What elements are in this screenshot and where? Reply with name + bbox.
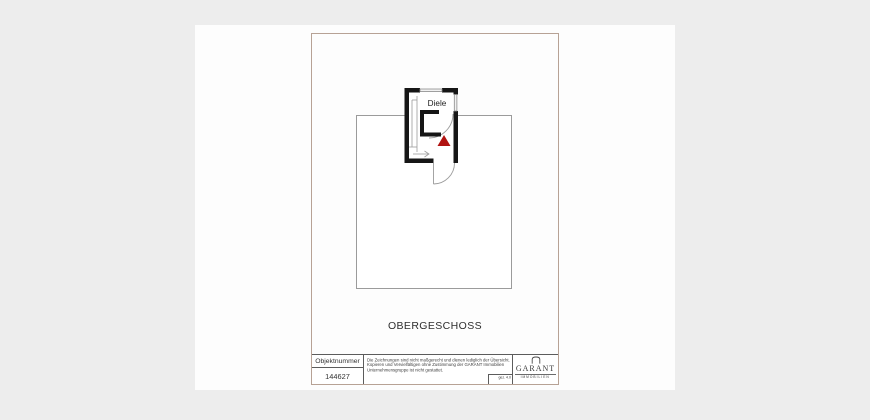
drawing-frame: OBERGESCHOSS Objektnummer 144627 Die Zei…: [311, 33, 559, 385]
object-number-cell: Objektnummer 144627: [312, 355, 364, 384]
disclaimer-line-3: Unternehmensgruppe ist nicht gestattet.: [367, 367, 512, 372]
drawn-by-box: gez. 4.0: [488, 374, 512, 384]
house-arch-icon: [530, 356, 542, 364]
object-number-value: 144627: [312, 368, 363, 384]
logo-cell: GARANT IMMOBILIEN: [512, 355, 558, 384]
disclaimer-text: Die Zeichnungen sind nicht maßgerecht un…: [367, 358, 512, 373]
floor-title: OBERGESCHOSS: [312, 320, 558, 332]
logo-subtitle: IMMOBILIEN: [521, 376, 550, 379]
object-number-label: Objektnummer: [312, 355, 363, 368]
screenshot-canvas: { "document": { "floor_title": "OBERGESC…: [0, 0, 870, 420]
paper-page: Diele OBERGESCHOSS Objektnummer 144627 D…: [195, 25, 675, 390]
drawn-by-text: gez. 4.0: [499, 376, 511, 380]
disclaimer-cell: Die Zeichnungen sind nicht maßgerecht un…: [364, 355, 512, 384]
title-block: Objektnummer 144627 Die Zeichnungen sind…: [312, 354, 558, 384]
logo-wordmark: GARANT: [515, 365, 556, 375]
